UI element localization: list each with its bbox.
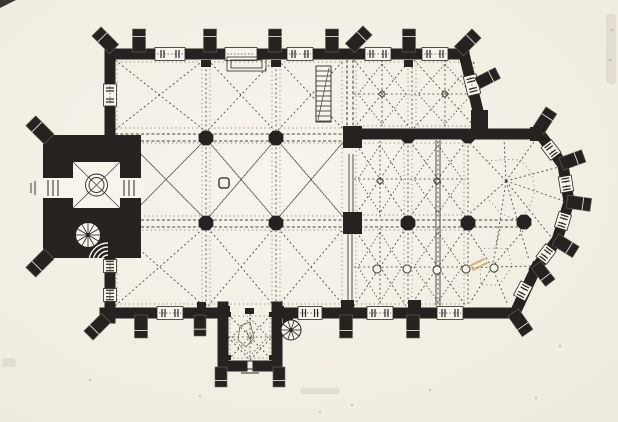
buttress [269, 29, 282, 52]
window-opening [367, 307, 393, 320]
respond-stub [269, 312, 274, 317]
spiral-stair [76, 223, 101, 248]
buttress [204, 29, 217, 52]
respond-stub [245, 308, 254, 314]
buttress [133, 29, 146, 52]
respond-stub [201, 60, 211, 67]
buttress [326, 29, 339, 52]
column [461, 216, 476, 231]
scan-speck [89, 379, 92, 382]
window-opening [437, 307, 463, 320]
scan-speck [319, 411, 322, 414]
buttress-body [403, 29, 416, 52]
buttress [407, 315, 420, 338]
buttress-body [215, 367, 227, 387]
buttress-body [326, 29, 339, 52]
buttress [215, 367, 227, 387]
spiral-stair [281, 320, 301, 340]
tower-east-arch [118, 178, 144, 198]
buttress-body [204, 29, 217, 52]
scan-speck [535, 397, 538, 400]
window-opening [287, 48, 313, 61]
window-opening [365, 48, 391, 61]
buttress-body [340, 315, 353, 338]
window-opening [157, 307, 183, 320]
west-portal [38, 178, 73, 198]
scan-patch [2, 358, 16, 367]
window-reveal [558, 175, 573, 193]
door-opening [225, 48, 257, 61]
scan-patch [606, 14, 616, 84]
scan-speck [351, 404, 354, 407]
column [269, 216, 284, 231]
buttress [273, 367, 285, 387]
newel-post [86, 233, 90, 237]
window-opening [104, 289, 117, 302]
respond-stub [269, 355, 274, 360]
respond-stub [226, 312, 231, 317]
respond-stub [404, 60, 413, 67]
window-reveal [155, 48, 185, 61]
window-opening [298, 307, 322, 320]
column [199, 131, 214, 146]
scan-patch [300, 388, 340, 394]
vault-boss [490, 264, 498, 272]
buttress-body [133, 29, 146, 52]
scan-speck [429, 389, 432, 392]
pier [471, 110, 488, 138]
newel-post [289, 328, 293, 332]
buttress [403, 29, 416, 52]
column [269, 131, 284, 146]
vault-boss [373, 265, 381, 273]
church-floor-plan-svg [0, 0, 618, 422]
buttress [135, 315, 148, 338]
respond-stub [341, 300, 354, 308]
column [401, 216, 416, 231]
window-opening [558, 175, 573, 193]
pier [530, 127, 542, 141]
window-opening [104, 84, 117, 106]
column [199, 216, 214, 231]
buttress-body [135, 315, 148, 338]
respond-stub [226, 355, 231, 360]
buttress-body [194, 315, 206, 336]
scan-speck [199, 395, 202, 398]
window-opening [155, 48, 185, 61]
respond-stub [408, 300, 421, 308]
vault-boss [433, 266, 441, 274]
window-opening [422, 48, 448, 61]
respond-stub [197, 302, 206, 308]
scan-speck [559, 345, 562, 348]
floor-plan-scan [0, 0, 618, 422]
pier [343, 212, 362, 234]
buttress-body [273, 367, 285, 387]
buttress-body [269, 29, 282, 52]
buttress [194, 315, 206, 336]
buttress [340, 315, 353, 338]
window-opening [104, 260, 117, 273]
respond-stub [271, 60, 281, 67]
column [517, 215, 532, 230]
buttress-body [407, 315, 420, 338]
pier [343, 126, 362, 148]
column [401, 129, 416, 144]
vault-boss [403, 265, 411, 273]
